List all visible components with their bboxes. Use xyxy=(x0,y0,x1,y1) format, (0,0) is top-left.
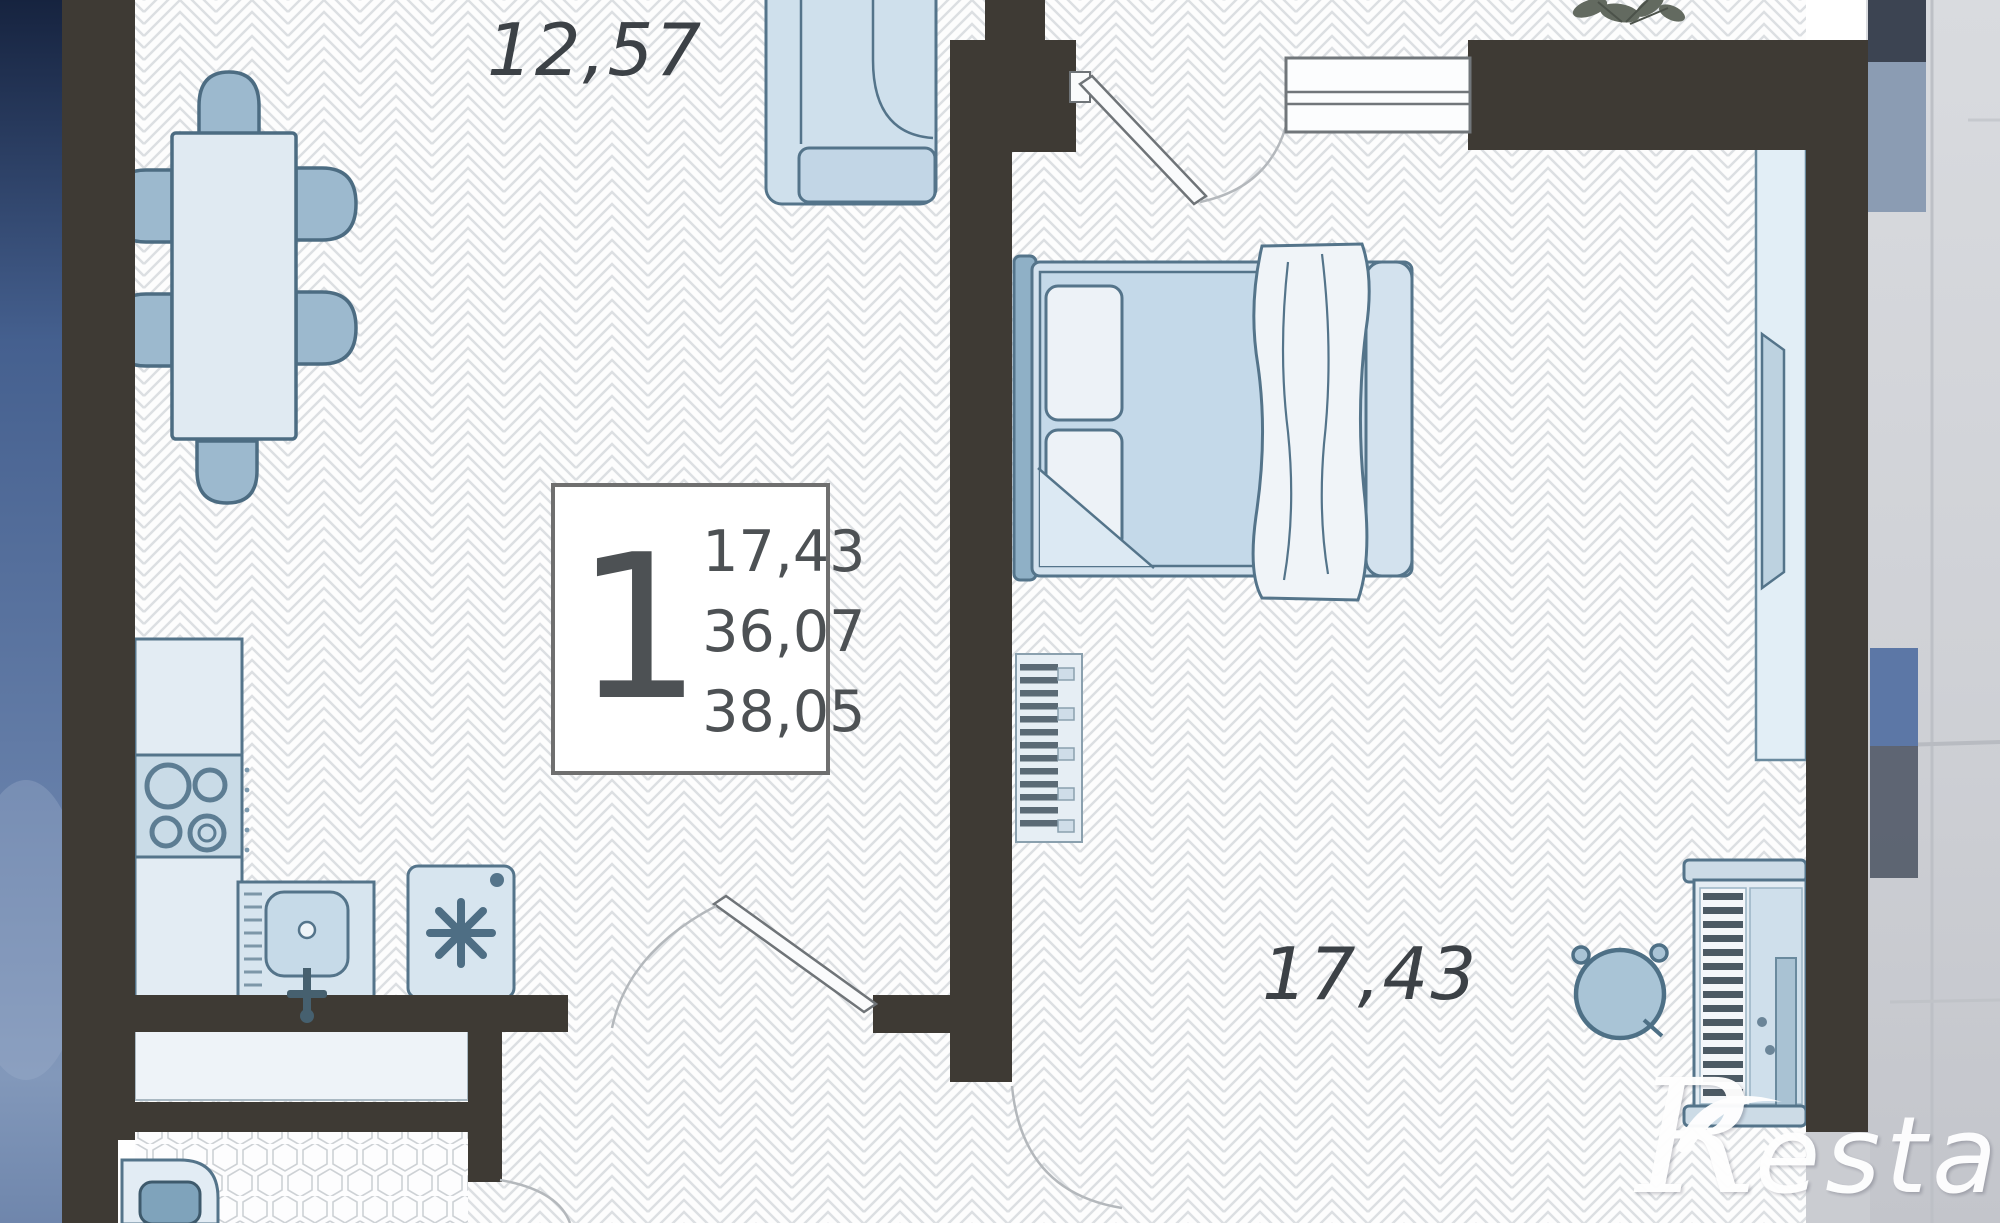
snowflake-icon xyxy=(430,902,492,964)
wardrobe xyxy=(1756,146,1806,760)
hall-cabinet xyxy=(135,1030,468,1100)
bed xyxy=(1014,244,1412,600)
bed-blanket xyxy=(1253,244,1369,600)
watermark-swoosh-icon xyxy=(1664,1086,1794,1166)
area-values: 17,43 36,07 38,05 xyxy=(702,506,885,752)
area-value: 17,43 xyxy=(702,512,865,592)
radiator xyxy=(1016,654,1082,842)
sliding-door-window xyxy=(1286,58,1470,132)
tv-panel xyxy=(1762,334,1784,588)
living-room-area-label: 12,57 xyxy=(487,8,703,92)
area-value: 36,07 xyxy=(702,592,865,672)
stove xyxy=(135,755,249,857)
bedroom-area-label: 17,43 xyxy=(1262,932,1478,1016)
sofa xyxy=(766,0,936,204)
dining-table xyxy=(172,133,296,439)
rooms-count: 1 xyxy=(575,529,702,729)
area-value: 38,05 xyxy=(702,672,865,752)
floor-plan-screenshot: 12,57 17,43 1 17,43 36,07 38,05 Restate xyxy=(0,0,2000,1223)
washing-machine-bathroom xyxy=(122,1160,218,1223)
floor-plan-drawing xyxy=(0,0,2000,1223)
bed-footboard xyxy=(1366,262,1412,576)
washing-machine-kitchen xyxy=(408,866,514,998)
round-stool xyxy=(1573,945,1667,1038)
sofa-armrest xyxy=(799,148,935,202)
bed-pillow xyxy=(1046,286,1122,420)
apartment-info-box: 1 17,43 36,07 38,05 xyxy=(551,483,830,775)
watermark-logo: Restate xyxy=(1636,1058,2000,1218)
